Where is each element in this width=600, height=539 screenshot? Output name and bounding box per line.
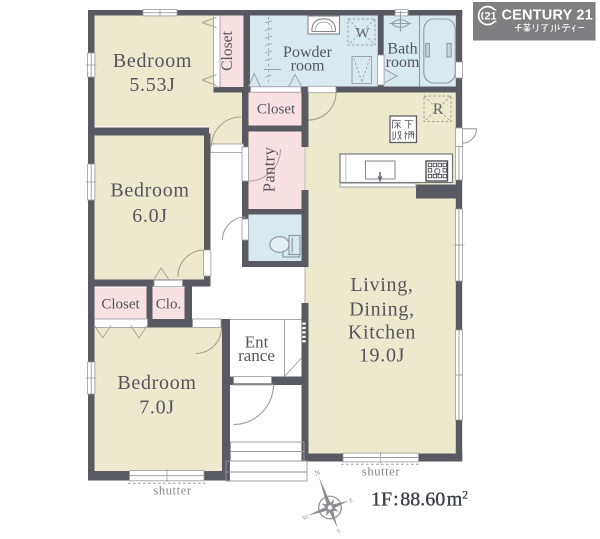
svg-text:Dining,: Dining,: [349, 299, 414, 321]
svg-text:rance: rance: [238, 346, 275, 365]
svg-text:room: room: [291, 58, 325, 75]
svg-text:6.0J: 6.0J: [132, 205, 168, 227]
svg-text:R: R: [433, 101, 444, 118]
svg-text:S: S: [336, 527, 342, 535]
svg-text:W: W: [302, 513, 311, 522]
svg-text:N: N: [313, 467, 322, 478]
svg-text:shutter: shutter: [153, 484, 191, 498]
svg-text:Pantry: Pantry: [260, 146, 279, 192]
svg-text:Closet: Closet: [257, 102, 296, 118]
svg-text:7.0J: 7.0J: [139, 397, 175, 419]
svg-text:21: 21: [484, 11, 496, 23]
svg-text:Bedroom: Bedroom: [113, 50, 192, 72]
svg-text:Closet: Closet: [101, 297, 140, 313]
svg-text:Clo.: Clo.: [156, 297, 181, 313]
svg-text:5.53J: 5.53J: [129, 74, 175, 96]
svg-text:1F:88.60m2: 1F:88.60m2: [371, 489, 468, 511]
svg-text:shutter: shutter: [362, 465, 400, 479]
svg-text:Bedroom: Bedroom: [117, 372, 196, 394]
svg-text:Closet: Closet: [219, 31, 236, 71]
svg-text:E: E: [348, 497, 354, 505]
svg-text:Living,: Living,: [350, 274, 413, 296]
svg-text:Kitchen: Kitchen: [348, 322, 416, 344]
svg-text:CENTURY 21: CENTURY 21: [502, 8, 593, 24]
svg-text:room: room: [386, 54, 420, 71]
svg-text:W: W: [355, 26, 370, 42]
svg-text:Bedroom: Bedroom: [110, 180, 189, 202]
svg-text:19.0J: 19.0J: [359, 345, 405, 367]
